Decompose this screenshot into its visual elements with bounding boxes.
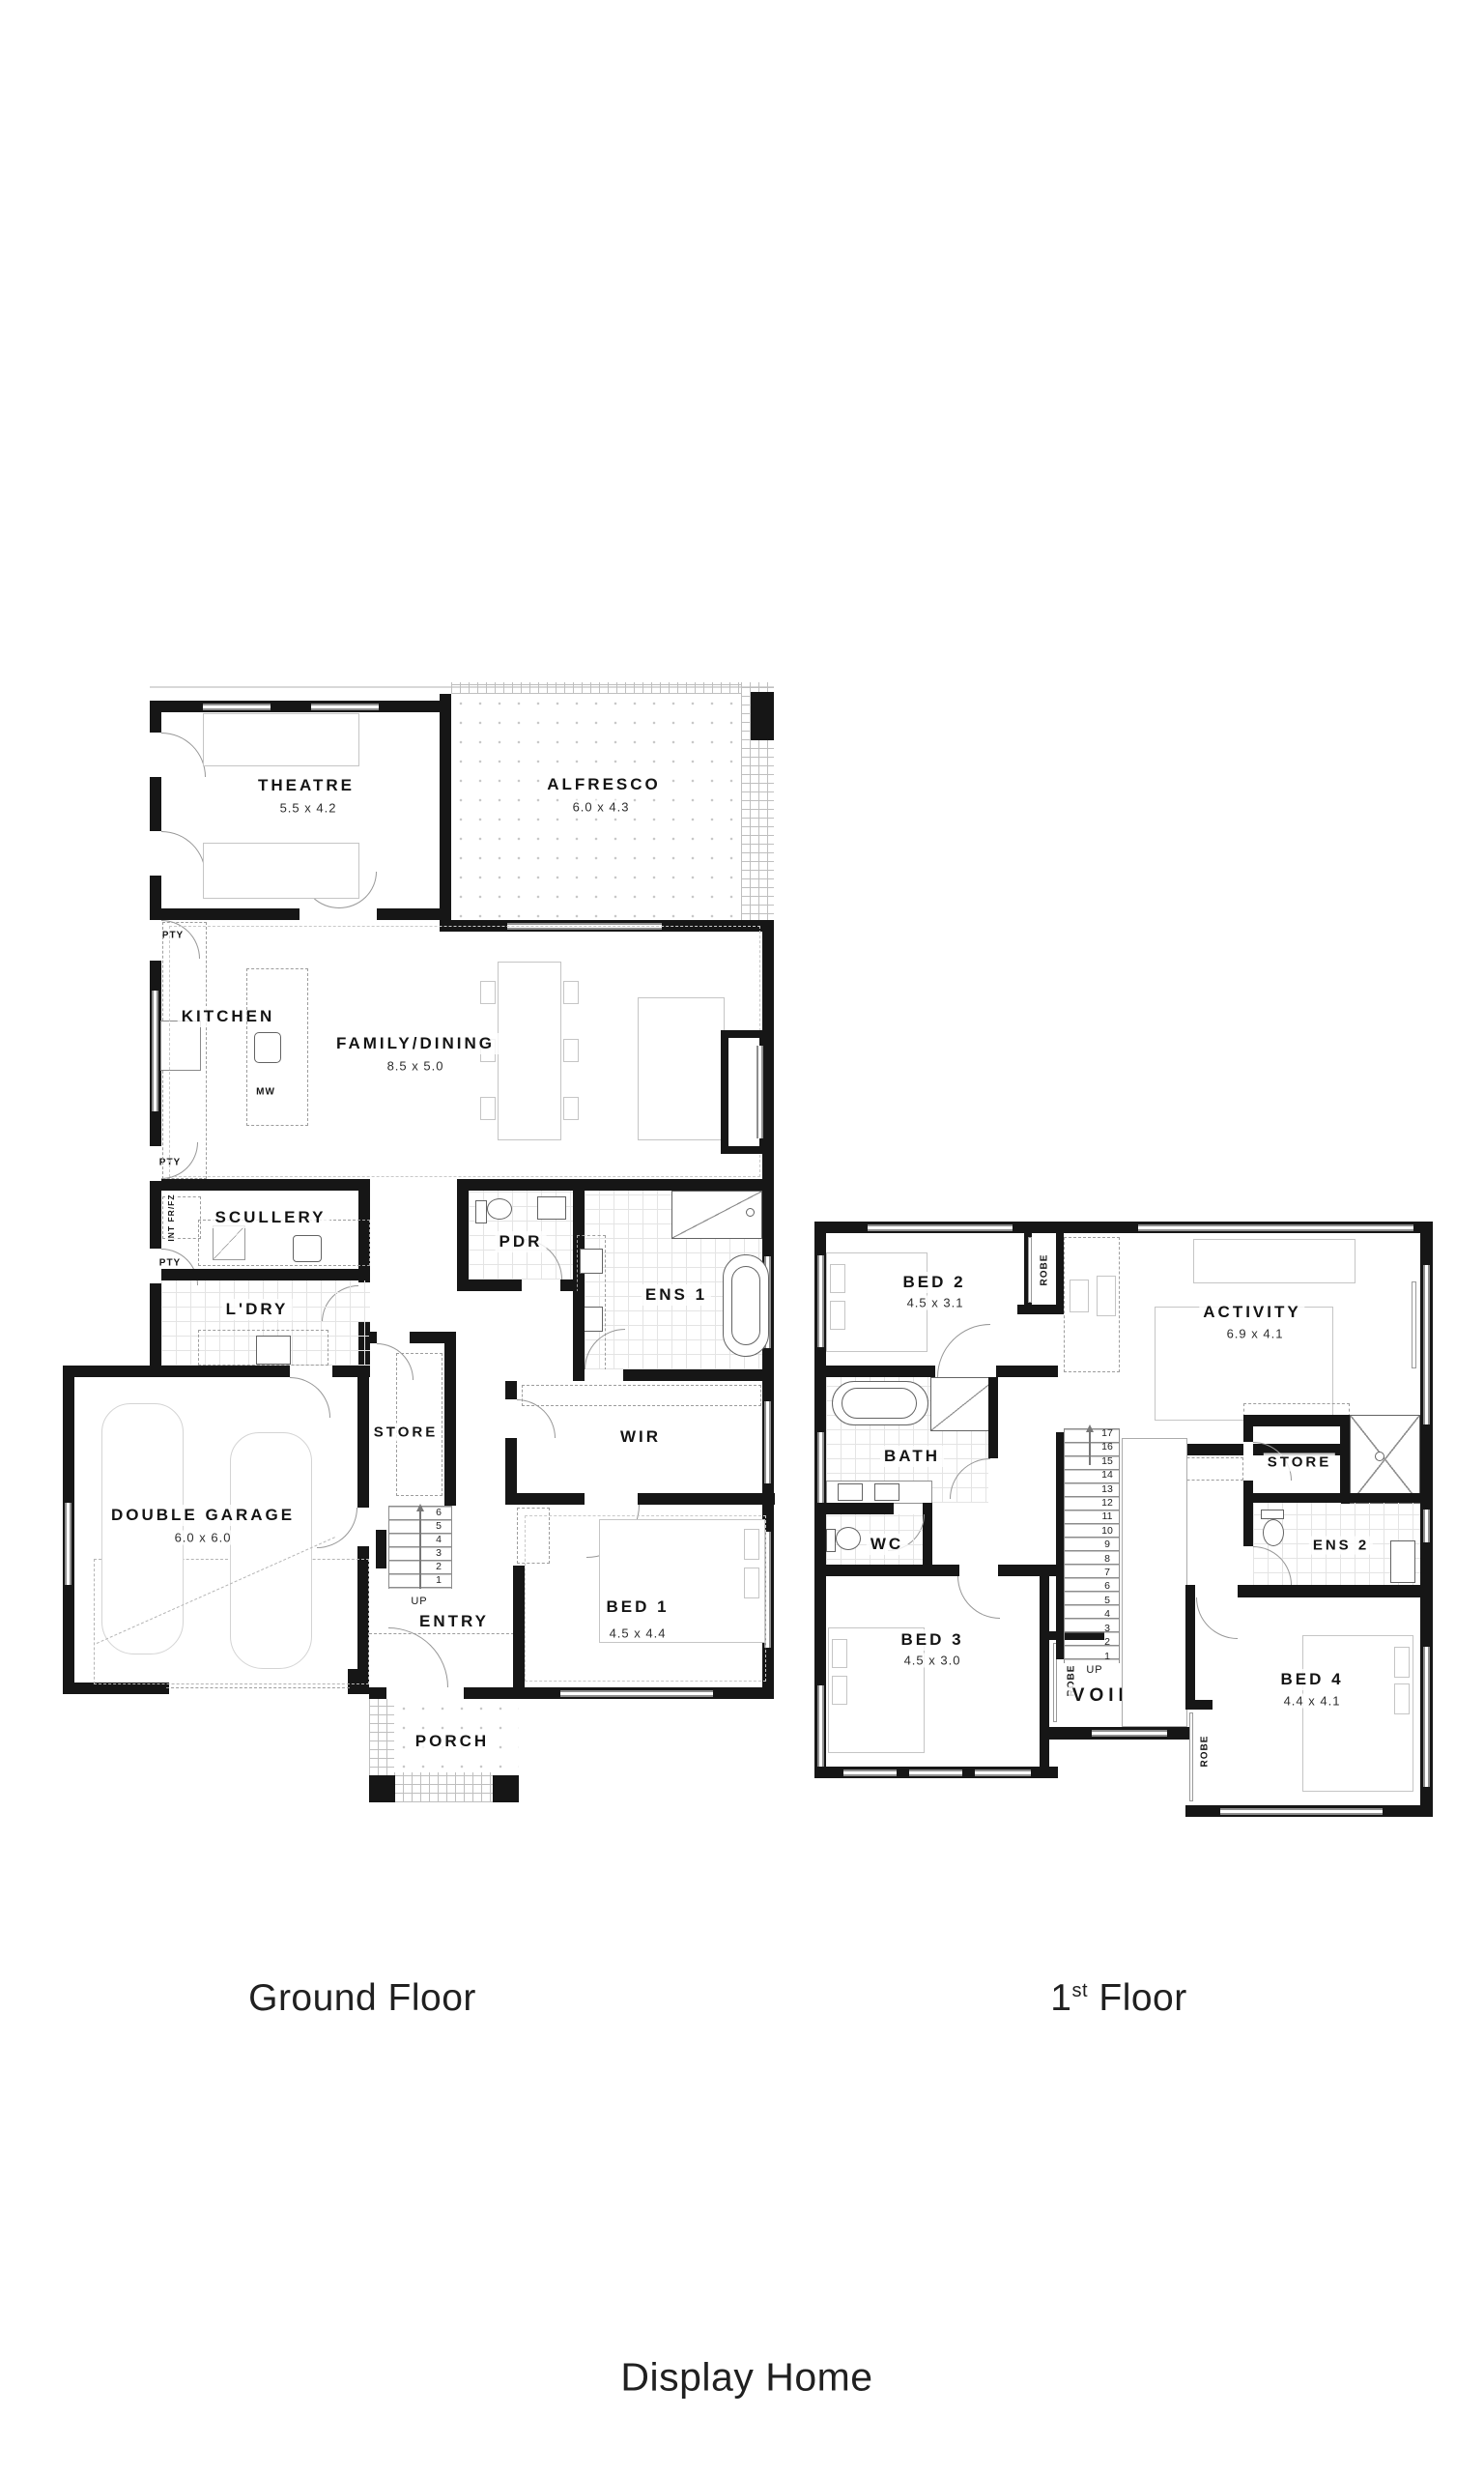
- bathtub-inner: [731, 1266, 760, 1345]
- stair-number: 2: [436, 1561, 442, 1572]
- window: [311, 704, 379, 710]
- wardrobe-shelving: [522, 1385, 761, 1406]
- door-arc: [1196, 1597, 1238, 1639]
- window: [843, 1769, 897, 1776]
- front-door-opening: [386, 1687, 464, 1699]
- porch-post: [493, 1775, 519, 1802]
- stair-number: 6: [436, 1507, 442, 1518]
- robe-slider: [1028, 1237, 1032, 1303]
- room-family-dining-dims: 8.5 x 5.0: [385, 1059, 447, 1074]
- up-label: UP: [409, 1596, 429, 1607]
- chair-icon: [480, 1097, 496, 1120]
- sofa-icon: [203, 843, 359, 899]
- porch-tile-strip: [394, 1772, 494, 1802]
- porch-post: [369, 1775, 395, 1802]
- room-bed3-dims: 4.5 x 3.0: [901, 1654, 964, 1668]
- wall: [150, 701, 451, 712]
- car-icon: [230, 1432, 312, 1669]
- caption-first-floor-number: 1: [1050, 1977, 1071, 2019]
- stair-arrow: [1089, 1432, 1091, 1465]
- door-opening: [1195, 1585, 1238, 1597]
- pillow-icon: [1394, 1683, 1410, 1714]
- room-store-label: STORE: [370, 1424, 442, 1442]
- window: [817, 1685, 824, 1770]
- sink-icon: [293, 1235, 322, 1262]
- stair-number: 5: [436, 1520, 442, 1532]
- wall: [161, 1269, 370, 1280]
- chair-icon: [563, 1097, 579, 1120]
- chair-icon: [563, 1039, 579, 1062]
- window: [975, 1769, 1031, 1776]
- wall: [161, 1179, 370, 1191]
- toilet-icon: [836, 1527, 861, 1550]
- stair-arrow: [419, 1511, 421, 1589]
- wall: [150, 908, 161, 1377]
- door-opening: [357, 1508, 369, 1546]
- wall: [376, 1530, 386, 1568]
- room-activity-dims: 6.9 x 4.1: [1224, 1327, 1287, 1341]
- door-arc: [957, 1576, 1000, 1619]
- laundry-trough-icon: [256, 1336, 291, 1365]
- wall: [440, 694, 451, 932]
- stair-number: 5: [1104, 1595, 1110, 1606]
- room-bed3-label: BED 3: [897, 1629, 967, 1651]
- window: [817, 1432, 824, 1510]
- basin-icon: [537, 1196, 566, 1220]
- shower-icon: [1350, 1415, 1420, 1504]
- window: [817, 1255, 824, 1347]
- room-pdr-label: PDR: [496, 1231, 547, 1252]
- window: [756, 1046, 763, 1138]
- shower-head-icon: [1375, 1452, 1384, 1461]
- toilet-icon: [487, 1198, 512, 1220]
- door-arc: [161, 831, 206, 876]
- stair-number: 1: [1104, 1651, 1110, 1662]
- pillow-icon: [832, 1639, 847, 1668]
- room-wc-label: WC: [867, 1534, 907, 1555]
- window: [1423, 1265, 1430, 1424]
- desk-icon: [1097, 1276, 1116, 1316]
- door-opening: [377, 1332, 410, 1343]
- wall: [585, 1179, 774, 1191]
- door-opening: [150, 831, 161, 876]
- window: [909, 1769, 962, 1776]
- sofa-icon: [203, 713, 359, 766]
- eave-dashed: [525, 1515, 766, 1682]
- room-bed4-dims: 4.4 x 4.1: [1281, 1694, 1344, 1709]
- door-opening: [150, 733, 161, 777]
- wall: [457, 1179, 585, 1191]
- stair-arrow-head: [416, 1504, 424, 1511]
- robe-label: ROBE: [1040, 1252, 1050, 1288]
- door-opening: [585, 1493, 638, 1505]
- shower-head-icon: [746, 1208, 755, 1217]
- alfresco-top-band: [451, 682, 741, 694]
- wall: [457, 1179, 469, 1291]
- room-bed4-label: BED 4: [1276, 1669, 1347, 1690]
- basin-icon: [874, 1483, 899, 1501]
- caption-ground-floor: Ground Floor: [248, 1977, 476, 2020]
- wall: [1185, 1597, 1195, 1700]
- column: [751, 692, 774, 740]
- wall: [996, 1366, 1058, 1377]
- wall: [814, 1366, 935, 1377]
- wall: [444, 1332, 456, 1506]
- room-theatre-dims: 5.5 x 4.2: [277, 801, 340, 816]
- room-alfresco-dims: 6.0 x 4.3: [570, 800, 633, 815]
- wall: [1185, 1700, 1213, 1710]
- stair-number: 9: [1104, 1539, 1110, 1550]
- stair-number: 4: [1104, 1608, 1110, 1620]
- window: [764, 1401, 771, 1483]
- stair-number: 8: [1104, 1553, 1110, 1565]
- wall: [457, 1280, 585, 1291]
- dishwasher-icon: [213, 1225, 245, 1260]
- wall: [1243, 1493, 1420, 1503]
- window: [560, 1690, 713, 1697]
- wall: [1056, 1432, 1064, 1659]
- pillow-icon: [830, 1301, 845, 1330]
- wall: [998, 1565, 1058, 1576]
- stair-number: 1: [436, 1574, 442, 1586]
- stair-number: 15: [1101, 1455, 1113, 1467]
- wall: [814, 1503, 894, 1514]
- door-opening: [1243, 1546, 1253, 1585]
- tv-icon: [1412, 1281, 1416, 1368]
- ground-floor-plan: THEATRE 5.5 x 4.2 ALFRESCO 6.0 x 4.3 PTY…: [58, 676, 787, 1827]
- room-bed2-dims: 4.5 x 3.1: [904, 1296, 967, 1310]
- room-alfresco-label: ALFRESCO: [543, 774, 665, 795]
- stair-number: 16: [1101, 1441, 1113, 1453]
- pillow-icon: [830, 1264, 845, 1293]
- room-scullery-label: SCULLERY: [212, 1207, 330, 1228]
- caption-first-floor: 1st Floor: [1050, 1977, 1186, 2020]
- basin-icon: [838, 1483, 863, 1501]
- room-activity-label: ACTIVITY: [1199, 1302, 1304, 1323]
- door-opening: [300, 908, 377, 920]
- door-arc: [161, 733, 206, 777]
- door-opening: [290, 1366, 332, 1377]
- sofa-icon: [638, 997, 725, 1140]
- door-opening: [522, 1280, 560, 1291]
- window: [1423, 1647, 1430, 1787]
- wall: [513, 1566, 525, 1687]
- footer-title: Display Home: [620, 2355, 872, 2401]
- stair-number: 14: [1101, 1469, 1113, 1481]
- room-laundry-label: L'DRY: [222, 1299, 293, 1320]
- desk-icon: [1070, 1280, 1089, 1312]
- stair-number: 11: [1102, 1510, 1113, 1522]
- car-icon: [101, 1403, 184, 1654]
- stair-number: 13: [1101, 1483, 1113, 1495]
- toilet-icon: [475, 1200, 487, 1223]
- chair-icon: [480, 981, 496, 1004]
- garage-door-line: [166, 1687, 350, 1688]
- window: [1092, 1730, 1167, 1737]
- floor-plan-page: THEATRE 5.5 x 4.2 ALFRESCO 6.0 x 4.3 PTY…: [0, 0, 1484, 2474]
- room-garage-label: DOUBLE GARAGE: [107, 1505, 299, 1526]
- window: [203, 704, 271, 710]
- stair-number: 17: [1101, 1427, 1113, 1439]
- stair-number: 6: [1104, 1580, 1110, 1592]
- window: [868, 1224, 1013, 1231]
- pantry-label: PTY: [157, 1258, 183, 1269]
- room-bed2-label: BED 2: [899, 1272, 969, 1293]
- window: [152, 991, 158, 1111]
- dining-table-icon: [498, 962, 561, 1140]
- up-label: UP: [1084, 1664, 1104, 1676]
- caption-first-floor-word: Floor: [1099, 1977, 1186, 2019]
- stair-void-rail: [1122, 1438, 1187, 1727]
- wall: [1340, 1415, 1350, 1504]
- door-arc: [937, 1324, 990, 1377]
- toilet-icon: [1261, 1510, 1284, 1519]
- caption-first-floor-suffix: st: [1071, 1980, 1088, 2001]
- stair-arrow-head: [1086, 1424, 1094, 1432]
- window: [65, 1503, 71, 1585]
- pillow-icon: [832, 1676, 847, 1705]
- stair-number: 12: [1101, 1497, 1113, 1509]
- robe-label: ROBE: [1200, 1734, 1211, 1769]
- stair-number: 10: [1101, 1525, 1113, 1537]
- wall: [1056, 1233, 1064, 1314]
- toilet-icon: [1263, 1519, 1284, 1546]
- room-bath-label: BATH: [880, 1446, 944, 1467]
- window: [1423, 1510, 1430, 1542]
- room-family-dining-label: FAMILY/DINING: [332, 1033, 499, 1054]
- door-opening: [1243, 1442, 1253, 1481]
- wall: [1243, 1415, 1350, 1426]
- fridge-label: INT FR/FZ: [166, 1192, 176, 1243]
- door-opening: [505, 1399, 517, 1438]
- chair-icon: [563, 981, 579, 1004]
- robe-slider: [1189, 1712, 1193, 1801]
- room-entry-label: ENTRY: [415, 1611, 493, 1632]
- bathtub-inner: [842, 1388, 917, 1419]
- wall: [505, 1493, 775, 1505]
- room-wir-label: WIR: [616, 1426, 665, 1448]
- toilet-icon: [826, 1529, 836, 1552]
- wall: [988, 1377, 998, 1458]
- window: [1138, 1224, 1413, 1231]
- window: [1220, 1808, 1383, 1815]
- tv-niche-inner: [728, 1038, 759, 1146]
- basin-icon: [580, 1249, 603, 1274]
- stair-number: 2: [1104, 1636, 1110, 1648]
- wall: [573, 1291, 585, 1381]
- stair-number: 3: [1104, 1623, 1110, 1634]
- wall: [1040, 1576, 1049, 1778]
- pillow-icon: [1394, 1647, 1410, 1678]
- stair-number: 4: [436, 1534, 442, 1545]
- room-store-label: STORE: [1264, 1453, 1335, 1472]
- wall: [814, 1565, 959, 1576]
- stair-number: 7: [1104, 1567, 1110, 1578]
- door-opening: [585, 1369, 623, 1381]
- room-garage-dims: 6.0 x 6.0: [172, 1531, 235, 1545]
- room-ens1-label: ENS 1: [642, 1284, 711, 1306]
- stair-number: 3: [436, 1547, 442, 1559]
- sofa-icon: [1193, 1239, 1356, 1283]
- first-floor-plan: BED 2 4.5 x 3.1 ROBE ACTIVITY 6.9 x 4.1 …: [814, 1222, 1433, 1821]
- room-ens2-label: ENS 2: [1309, 1537, 1373, 1555]
- room-porch-label: PORCH: [412, 1731, 493, 1752]
- room-theatre-label: THEATRE: [254, 775, 358, 796]
- vanity-icon: [1390, 1540, 1415, 1583]
- front-door-arc: [388, 1627, 448, 1687]
- door-arc: [290, 1377, 330, 1418]
